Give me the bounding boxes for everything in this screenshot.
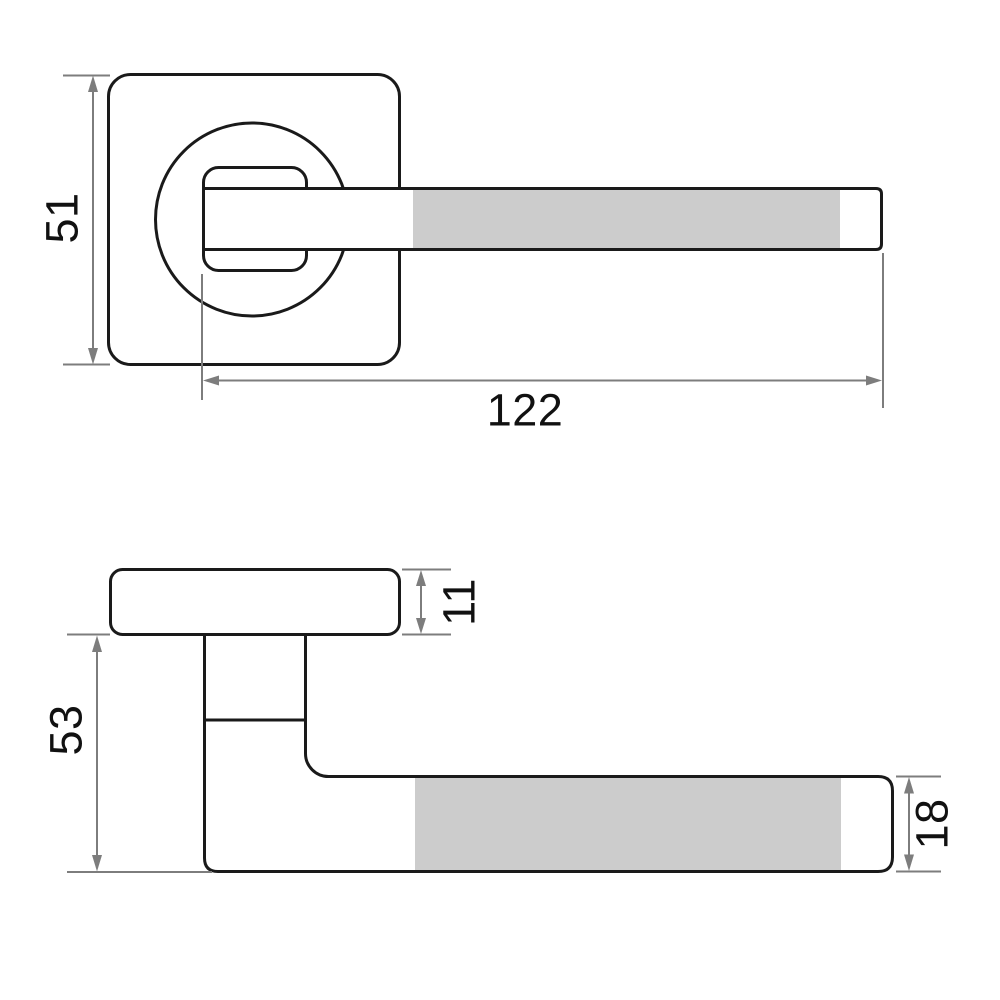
dim-51-label: 51 [37,192,88,243]
dim-18-arrow-down-icon [904,855,914,872]
dimension-18: 18 [896,777,958,872]
front-view: 51 122 [37,75,884,436]
side-lever-grip-highlight [415,778,841,870]
dim-18-label: 18 [907,798,958,849]
dim-51-arrow-up-icon [88,76,98,93]
side-view: 11 53 18 [41,570,958,873]
dim-122-label: 122 [487,385,564,436]
dim-11-arrow-down-icon [416,618,426,634]
dim-11-arrow-up-icon [416,570,426,586]
dim-122-arrow-left-icon [203,376,219,386]
dim-18-arrow-up-icon [904,777,914,794]
dimension-51: 51 [37,76,111,365]
dimension-53: 53 [41,635,213,873]
dim-53-arrow-down-icon [92,855,102,872]
dim-122-arrow-right-icon [866,376,882,386]
drawing-canvas: 51 122 [0,0,1000,1000]
dim-53-label: 53 [41,704,92,755]
dim-51-arrow-down-icon [88,348,98,365]
dim-53-arrow-up-icon [92,636,102,653]
front-lever-grip-highlight [413,189,840,250]
side-rosette-plate [111,570,400,635]
door-handle-dimension-drawing: 51 122 [0,0,1000,1000]
dim-11-label: 11 [434,578,485,626]
dimension-11: 11 [402,570,485,635]
